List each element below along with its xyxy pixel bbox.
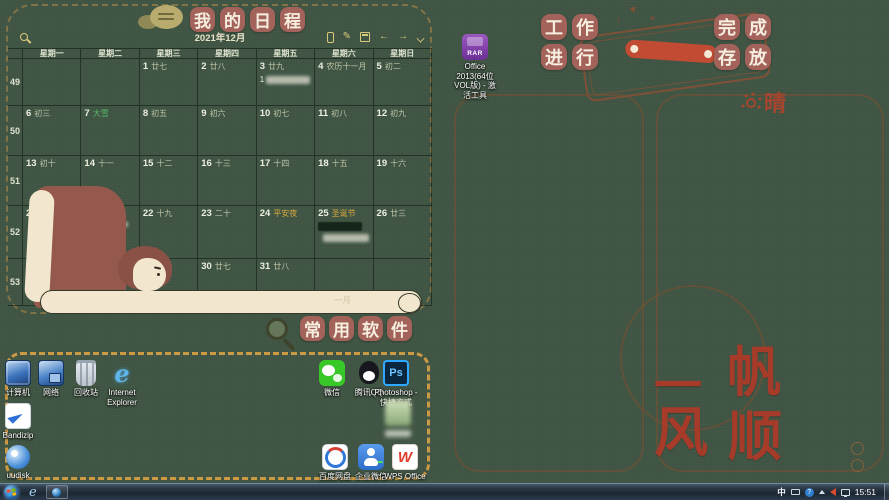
calendar-event[interactable] bbox=[318, 234, 369, 242]
rar-icon: RAR bbox=[462, 34, 488, 60]
icon-label: Office2013(64位VOL版) - 激活工具 bbox=[454, 62, 496, 100]
network-icon bbox=[38, 360, 64, 386]
decor-char: 进 bbox=[541, 44, 567, 70]
decor-char: 作 bbox=[572, 14, 598, 40]
taskbar: e 中 15:51 bbox=[0, 483, 889, 500]
windows-flag-icon bbox=[6, 488, 16, 496]
calendar-day-cell[interactable]: 8初五 bbox=[139, 106, 197, 155]
decor-char: 程 bbox=[280, 7, 305, 32]
decor-char: 软 bbox=[358, 316, 383, 341]
taskbar-app-button[interactable] bbox=[46, 485, 68, 499]
decor-char: 我 bbox=[190, 7, 215, 32]
wps-icon: W bbox=[392, 444, 418, 470]
icon-label: 回收站 bbox=[74, 388, 98, 398]
desktop-icon-ie[interactable]: eInternetExplorer bbox=[102, 360, 142, 407]
music-note-icon bbox=[615, 14, 621, 25]
week-number: 52 bbox=[8, 206, 22, 258]
desktop-icon-wps[interactable]: WWPS Office bbox=[385, 444, 425, 482]
mini-circle bbox=[851, 459, 864, 472]
decor-char: 成 bbox=[745, 14, 771, 40]
calendar-grid-icon[interactable] bbox=[360, 32, 370, 42]
desktop-icon-baidu[interactable]: 百度网盘 bbox=[315, 444, 355, 482]
chat-bubbles-icon bbox=[138, 5, 184, 35]
motto-char: 风 bbox=[653, 388, 709, 467]
mini-circle bbox=[851, 442, 864, 455]
next-month-arrow[interactable] bbox=[398, 32, 408, 42]
decor-char: 放 bbox=[745, 44, 771, 70]
calendar-day-cell[interactable]: 18十五 bbox=[314, 156, 372, 205]
wechat-icon bbox=[319, 360, 345, 386]
calendar-day-cell[interactable]: 19十六 bbox=[373, 156, 432, 205]
illustration-person-face bbox=[133, 258, 166, 291]
software-title: 常用软件 bbox=[266, 316, 412, 341]
week-number: 51 bbox=[8, 156, 22, 205]
show-desktop-button[interactable] bbox=[884, 484, 889, 500]
ps-icon: Ps bbox=[383, 360, 409, 386]
schedule-title: 我的日程 bbox=[138, 5, 305, 35]
volume-icon[interactable] bbox=[830, 488, 836, 496]
icon-label: uudisk bbox=[6, 471, 29, 481]
ie-icon: e bbox=[109, 360, 135, 386]
hidden-icons-chevron[interactable] bbox=[819, 490, 825, 494]
desktop-icon-disk[interactable]: uudisk bbox=[0, 445, 38, 481]
wecom-icon bbox=[358, 444, 384, 470]
recycle-icon bbox=[76, 360, 96, 386]
decor-char: 日 bbox=[250, 7, 275, 32]
desktop-icon-wechat[interactable]: 微信 bbox=[312, 360, 352, 398]
schedule-title-text: 我的日程 bbox=[190, 7, 305, 32]
calendar-day-cell[interactable]: 17十四 bbox=[256, 156, 314, 205]
calendar-event[interactable]: 1 bbox=[260, 75, 311, 84]
illustration-eye bbox=[157, 273, 160, 276]
weather-char: 晴 bbox=[764, 86, 786, 118]
icon-label: 网络 bbox=[43, 388, 59, 398]
calendar-day-cell[interactable] bbox=[80, 59, 138, 105]
calendar-day-cell[interactable] bbox=[22, 59, 80, 105]
decor-char: 行 bbox=[572, 44, 598, 70]
calendar-event[interactable] bbox=[318, 222, 369, 231]
icon-label: WPS Office bbox=[384, 472, 425, 482]
calendar-day-cell[interactable]: 3廿九1 bbox=[256, 59, 314, 105]
calendar-day-cell[interactable]: 1廿七 bbox=[139, 59, 197, 105]
next-month-label: 一月 bbox=[334, 294, 351, 306]
week-number: 50 bbox=[8, 106, 22, 155]
calendar-day-cell[interactable]: 5初二 bbox=[373, 59, 432, 105]
calendar-day-cell[interactable]: 24平安夜 bbox=[256, 206, 314, 258]
work-zone-outline bbox=[454, 94, 644, 472]
week-number: 53 bbox=[8, 259, 22, 305]
calendar-day-cell[interactable]: 10初七 bbox=[256, 106, 314, 155]
bubble-large bbox=[150, 5, 183, 29]
desktop-icon-bandizip[interactable]: Bandizip bbox=[0, 403, 38, 441]
baidu-icon bbox=[322, 444, 348, 470]
illustration-hand bbox=[398, 293, 421, 313]
heart-icon bbox=[649, 14, 655, 24]
keyboard-icon[interactable] bbox=[791, 489, 800, 495]
decor-char: 常 bbox=[300, 316, 325, 341]
weekday-header: 星期六 bbox=[314, 49, 372, 58]
weekday-header: 星期日 bbox=[373, 49, 432, 58]
input-method-indicator[interactable]: 中 bbox=[777, 486, 786, 498]
bandizip-icon bbox=[5, 403, 31, 429]
calendar-day-cell[interactable]: 9初六 bbox=[197, 106, 255, 155]
prev-month-arrow[interactable] bbox=[379, 32, 389, 42]
blurred-icon bbox=[385, 400, 411, 426]
magnifier-icon bbox=[266, 318, 288, 340]
software-title-text: 常用软件 bbox=[300, 316, 412, 341]
calendar-day-cell[interactable]: 12初九 bbox=[373, 106, 432, 155]
computer-icon bbox=[5, 360, 31, 386]
desktop: 我的日程 2021年12月 星期一星期二星期三星期四星期五星期六星期日491廿七… bbox=[0, 0, 889, 500]
calendar-day-cell[interactable]: 6初三 bbox=[22, 106, 80, 155]
icon-label: 企业微信 bbox=[355, 472, 387, 482]
icon-label: InternetExplorer bbox=[107, 388, 137, 407]
motto-char: 顺 bbox=[727, 392, 783, 471]
completed-storage-label: 完成存放 bbox=[714, 14, 771, 74]
start-button[interactable] bbox=[4, 485, 19, 500]
cassette-reels bbox=[625, 39, 718, 63]
icon-label: 微信 bbox=[324, 388, 340, 398]
icon-label: 计算机 bbox=[6, 388, 30, 398]
illustration-desk-bar bbox=[40, 290, 422, 314]
weekday-header: 星期一 bbox=[22, 49, 80, 58]
calendar-day-cell[interactable]: 7大雪 bbox=[80, 106, 138, 155]
taskbar-ie-icon[interactable]: e bbox=[29, 486, 37, 499]
decor-char: 用 bbox=[329, 316, 354, 341]
calendar-day-cell[interactable]: 4农历十一月 bbox=[314, 59, 372, 105]
calendar-day-cell[interactable]: 26廿三 bbox=[373, 206, 432, 258]
calendar-day-cell[interactable]: 25圣诞节 bbox=[314, 206, 372, 258]
help-icon[interactable] bbox=[805, 488, 814, 497]
phone-icon[interactable] bbox=[327, 32, 334, 43]
calendar-day-cell[interactable]: 23二十 bbox=[197, 206, 255, 258]
edit-icon[interactable] bbox=[343, 32, 351, 42]
weekday-header: 星期五 bbox=[256, 49, 314, 58]
work-in-progress-label: 工作进行 bbox=[541, 14, 598, 74]
desktop-icon-recycle[interactable]: 回收站 bbox=[66, 360, 106, 398]
decor-char: 的 bbox=[220, 7, 245, 32]
weekday-header: 星期二 bbox=[80, 49, 138, 58]
icon-label: Bandizip bbox=[3, 431, 34, 441]
calendar-day-cell[interactable]: 15十二 bbox=[139, 156, 197, 205]
calendar-toolbar-icons bbox=[327, 32, 424, 43]
disk-icon bbox=[6, 445, 30, 469]
network-icon[interactable] bbox=[841, 489, 850, 496]
calendar-day-cell[interactable]: 16十三 bbox=[197, 156, 255, 205]
desktop-icon-blurred[interactable] bbox=[378, 400, 418, 437]
desktop-icon-network[interactable]: 网络 bbox=[31, 360, 71, 398]
icon-label: 百度网盘 bbox=[319, 472, 351, 482]
calendar-day-cell[interactable]: 11初八 bbox=[314, 106, 372, 155]
taskbar-clock[interactable]: 15:51 bbox=[855, 487, 876, 497]
icon-label bbox=[385, 430, 411, 437]
decor-char: 件 bbox=[387, 316, 412, 341]
weekday-header: 星期四 bbox=[197, 49, 255, 58]
decor-char: 工 bbox=[541, 14, 567, 40]
sun-doodle-icon bbox=[746, 98, 756, 108]
heart-icon bbox=[628, 3, 638, 16]
week-number: 49 bbox=[8, 59, 22, 105]
desktop-icon-rar[interactable]: RAROffice2013(64位VOL版) - 激活工具 bbox=[455, 34, 495, 100]
decor-char: 完 bbox=[714, 14, 740, 40]
collapse-chevron-icon[interactable] bbox=[417, 34, 424, 41]
calendar-day-cell[interactable]: 2廿八 bbox=[197, 59, 255, 105]
decor-char: 存 bbox=[714, 44, 740, 70]
weekday-header: 星期三 bbox=[139, 49, 197, 58]
system-tray: 中 15:51 bbox=[777, 486, 876, 498]
app-icon bbox=[52, 488, 61, 497]
